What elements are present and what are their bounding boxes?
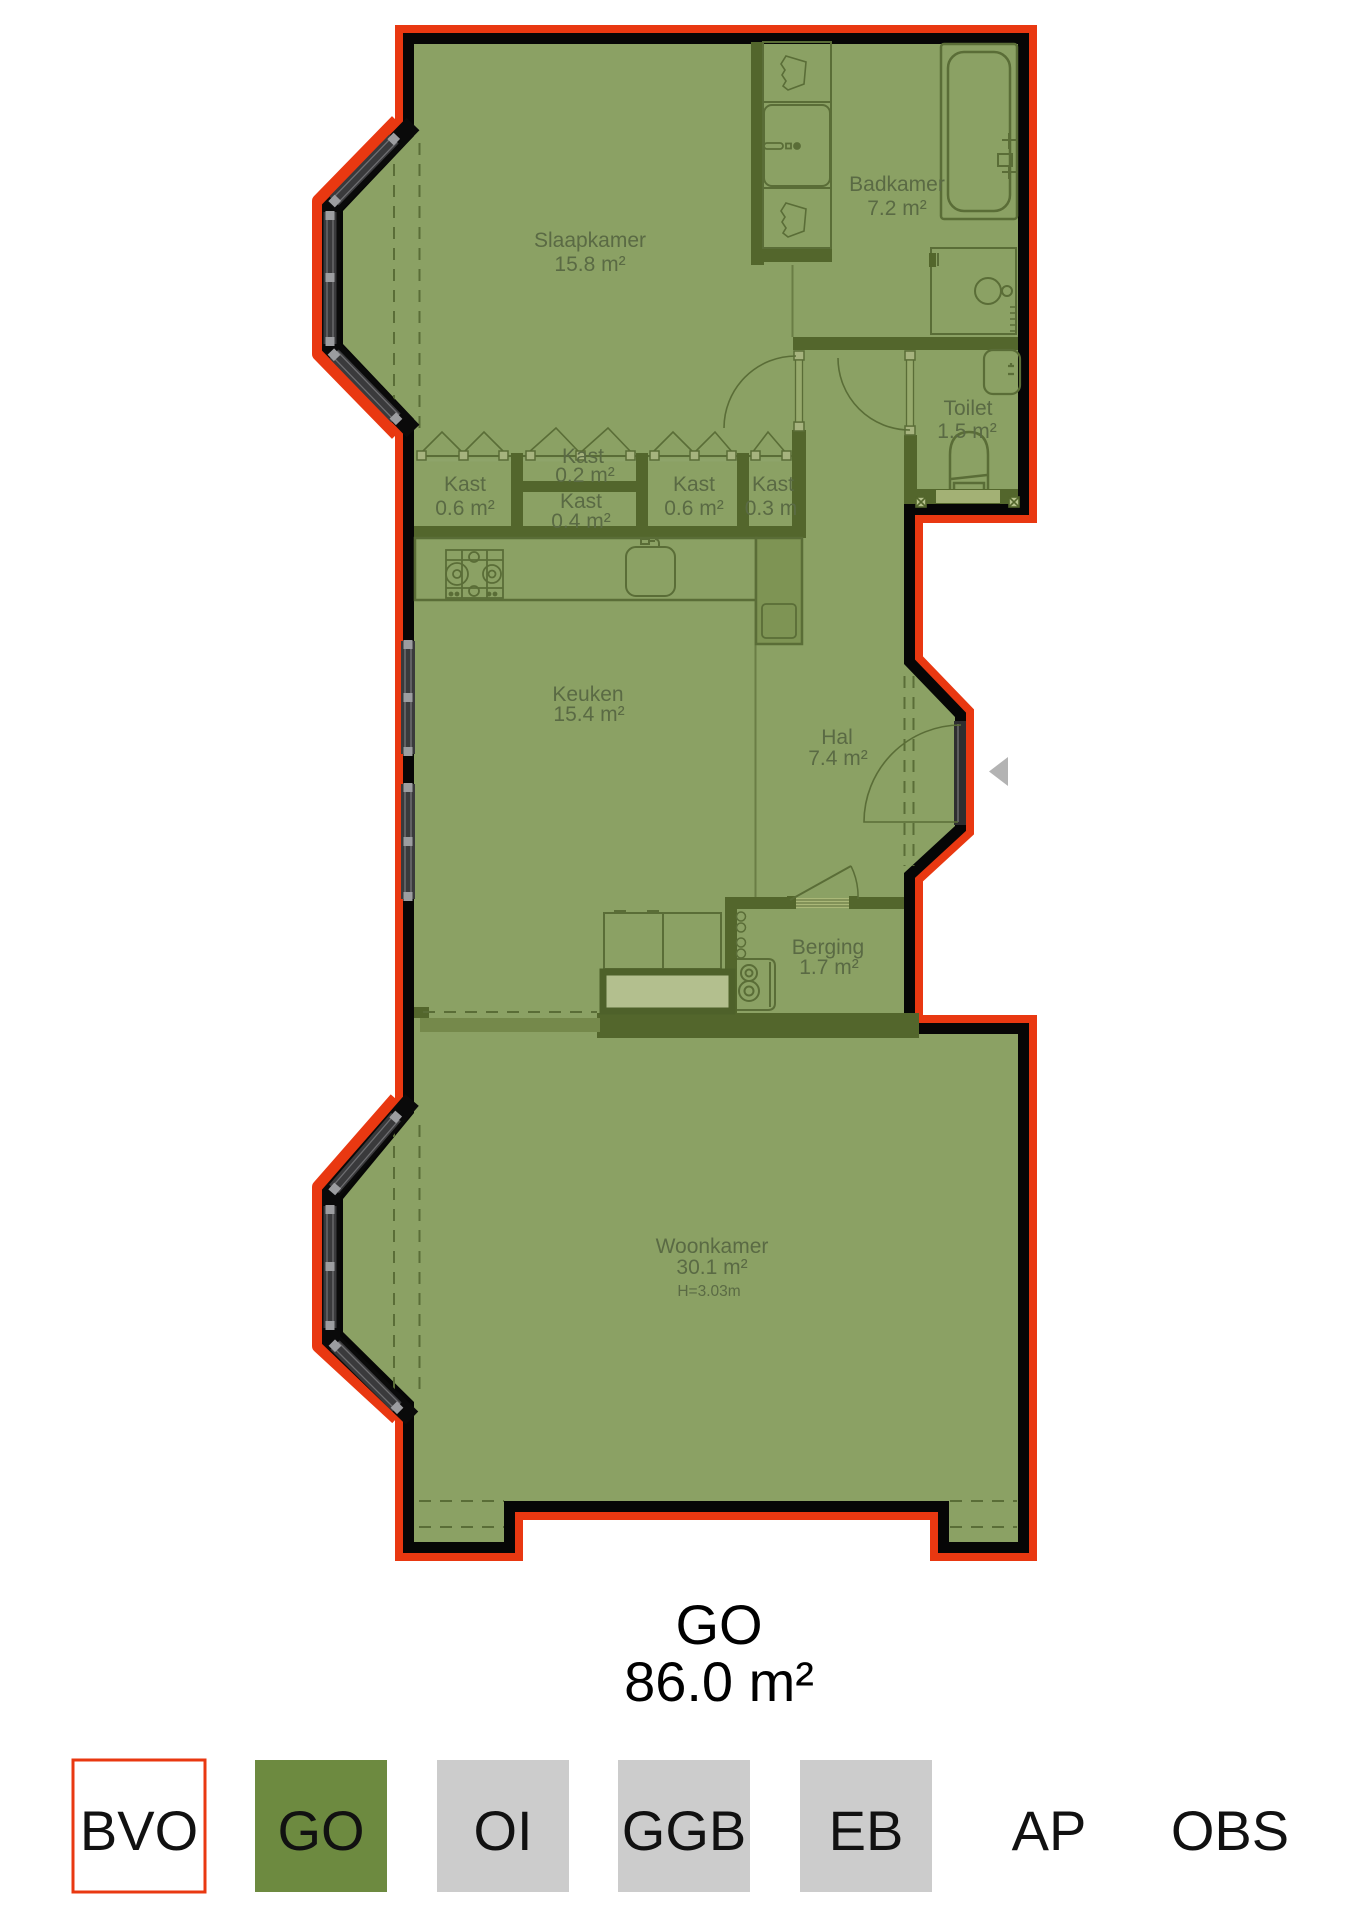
svg-text:GO: GO [277,1799,364,1862]
svg-text:86.0 m²: 86.0 m² [624,1650,814,1713]
svg-text:Hal: Hal [821,726,853,749]
svg-text:15.4 m²: 15.4 m² [553,703,624,726]
svg-text:1.7 m²: 1.7 m² [799,956,859,979]
svg-text:OBS: OBS [1171,1799,1289,1862]
svg-text:OI: OI [473,1799,532,1862]
svg-text:Woonkamer: Woonkamer [656,1235,769,1258]
svg-text:0.6 m²: 0.6 m² [664,497,724,520]
svg-text:0.3 m: 0.3 m [745,497,798,520]
svg-text:30.1 m²: 30.1 m² [676,1256,747,1279]
svg-text:7.2 m²: 7.2 m² [867,197,927,220]
svg-text:EB: EB [829,1799,904,1862]
svg-text:Kast: Kast [444,473,486,496]
svg-text:7.4 m²: 7.4 m² [808,747,868,770]
svg-text:GO: GO [675,1593,762,1656]
svg-text:0.4 m²: 0.4 m² [551,510,611,533]
svg-text:15.8 m²: 15.8 m² [554,253,625,276]
svg-text:Toilet: Toilet [943,397,992,420]
svg-text:Kast: Kast [673,473,715,496]
svg-text:Kast: Kast [752,473,794,496]
svg-text:0.2 m²: 0.2 m² [555,464,615,487]
svg-text:Slaapkamer: Slaapkamer [534,229,646,252]
svg-text:GGB: GGB [622,1799,746,1862]
svg-text:Badkamer: Badkamer [849,173,945,196]
svg-text:0.6 m²: 0.6 m² [435,497,495,520]
svg-text:H=3.03m: H=3.03m [677,1283,740,1300]
svg-text:AP: AP [1012,1799,1087,1862]
svg-text:BVO: BVO [80,1799,198,1862]
svg-text:1.5 m²: 1.5 m² [937,420,997,443]
